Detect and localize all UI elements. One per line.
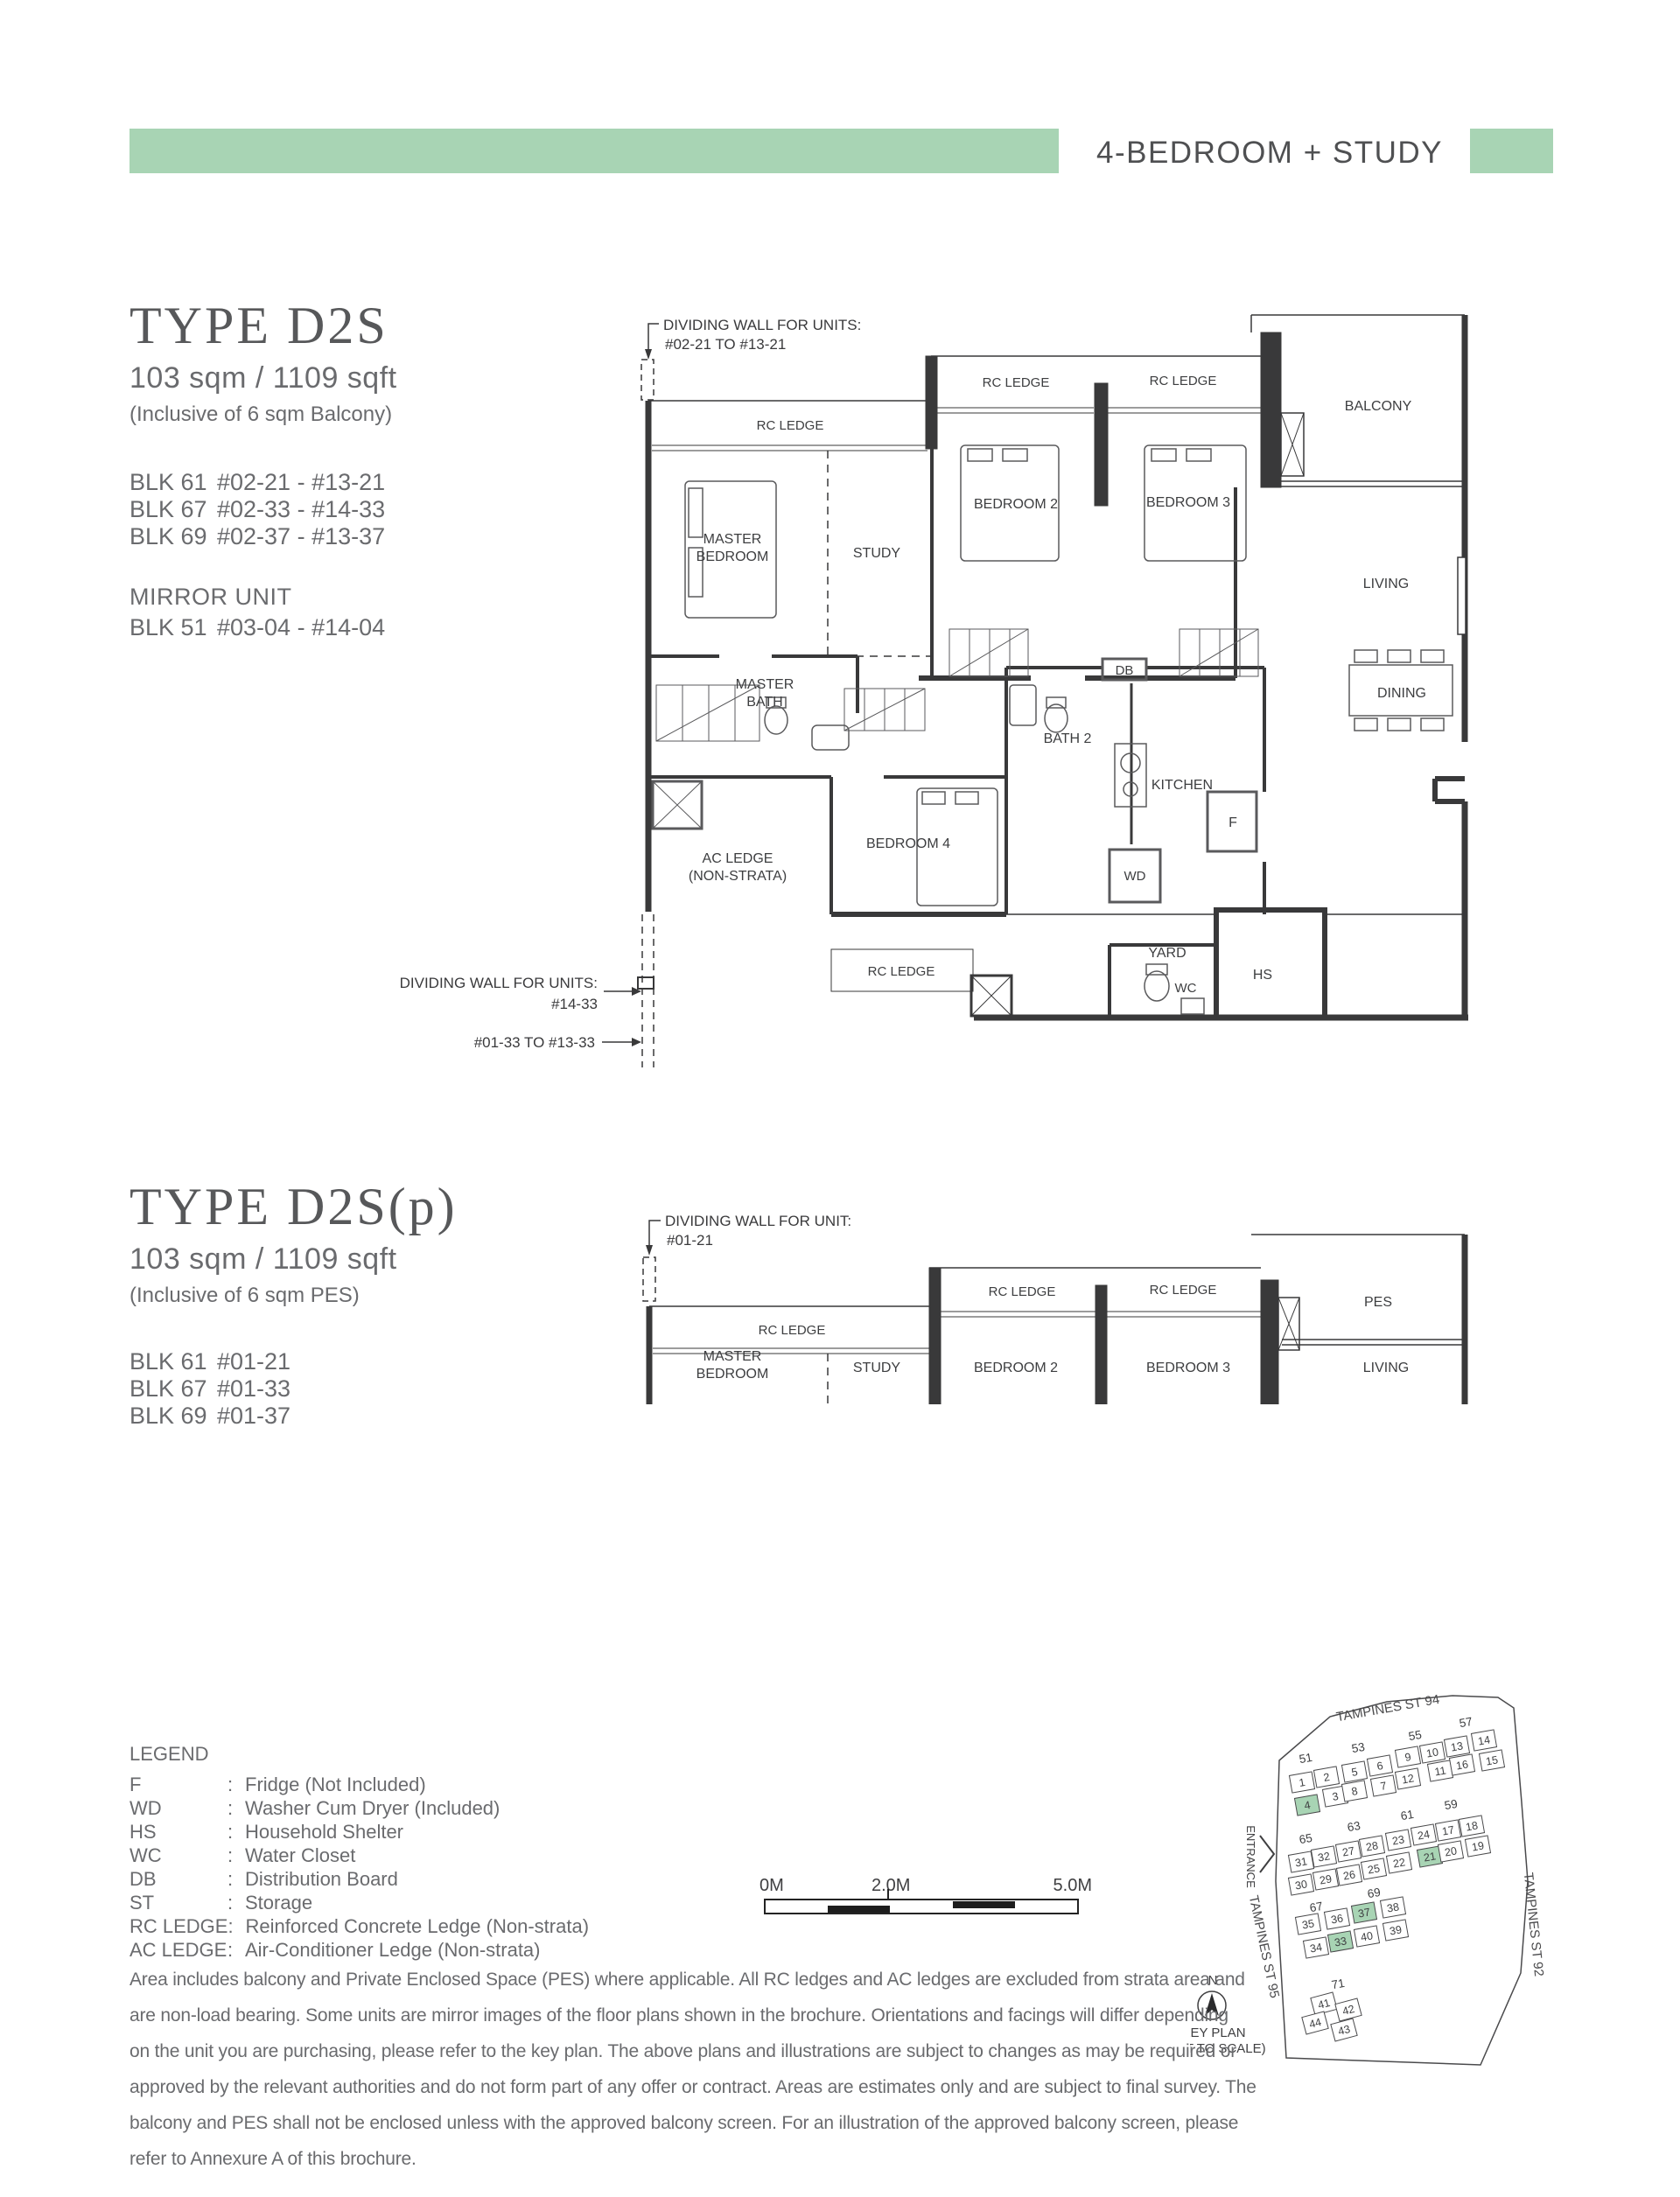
legend-row: WD:Washer Cum Dryer (Included) — [129, 1796, 742, 1820]
label-yard: YARD — [1148, 946, 1186, 961]
legend-colon: : — [227, 1773, 245, 1796]
label-hs: HS — [1253, 968, 1272, 983]
legend-key: AC LEDGE — [129, 1938, 227, 1962]
legend-key: WD — [129, 1796, 227, 1820]
type-d2sp-inclusive: (Inclusive of 6 sqm PES) — [129, 1284, 497, 1308]
label-rc-ledge: RC LEDGE — [1150, 1283, 1217, 1298]
disclaimer-line: balcony and PES shall not be enclosed un… — [129, 2105, 1372, 2141]
header-accent-bar — [129, 129, 1059, 173]
label-master-bedroom: BEDROOM — [696, 1367, 769, 1382]
blk-units: #01-21 — [217, 1348, 290, 1375]
legend-key: RC LEDGE — [129, 1914, 227, 1938]
label-bedroom4: BEDROOM 4 — [866, 836, 950, 851]
legend-desc: Household Shelter — [245, 1820, 403, 1844]
page-title: 4-BEDROOM + STUDY — [1096, 136, 1443, 171]
label-db: DB — [1116, 663, 1134, 678]
keyplan-block-number: 12 — [1401, 1772, 1415, 1786]
blk-units: #02-37 - #13-37 — [217, 523, 385, 550]
keyplan-block-number: 27 — [1341, 1844, 1355, 1858]
legend-key: ST — [129, 1891, 227, 1914]
annotation-dividing-wall-top-units: #02-21 TO #13-21 — [665, 336, 786, 353]
legend-row: ST:Storage — [129, 1891, 742, 1914]
scale-seg — [766, 1900, 828, 1913]
legend-desc: Fridge (Not Included) — [245, 1773, 426, 1796]
legend-colon: : — [227, 1820, 245, 1844]
disclaimer-line: approved by the relevant authorities and… — [129, 2069, 1372, 2105]
label-bedroom2: BEDROOM 2 — [974, 1361, 1058, 1375]
label-bath2: BATH 2 — [1044, 731, 1092, 746]
keyplan-block-number: 25 — [1367, 1862, 1381, 1876]
label-master-bedroom: MASTER — [703, 1349, 762, 1364]
legend-desc: Reinforced Concrete Ledge (Non-strata) — [245, 1914, 589, 1938]
label-ac-ledge: AC LEDGE — [703, 851, 773, 866]
disclaimer: Area includes balcony and Private Enclos… — [129, 1962, 1372, 2177]
disclaimer-line: refer to Annexure A of this brochure. — [129, 2141, 1372, 2177]
header-accent-square — [1470, 129, 1553, 173]
keyplan-block-number: 24 — [1417, 1828, 1431, 1842]
label-wc: WC — [1175, 981, 1197, 996]
blk-row: BLK 69 #01-37 — [129, 1403, 497, 1430]
keyplan-block-number: 29 — [1319, 1872, 1333, 1886]
wardrobe-icon — [656, 685, 759, 741]
label-ac-ledge: (NON-STRATA) — [689, 869, 787, 884]
legend-key: DB — [129, 1867, 227, 1891]
label-rc-ledge: RC LEDGE — [989, 1284, 1056, 1299]
keyplan-block-number: 31 — [1294, 1855, 1308, 1869]
label-dining: DINING — [1377, 686, 1426, 701]
keyplan-block-number: 19 — [1471, 1839, 1485, 1853]
keyplan-group-number: 65 — [1298, 1831, 1313, 1846]
legend-key: WC — [129, 1844, 227, 1867]
type-d2sp-title: TYPE D2S(p) — [129, 1177, 497, 1237]
legend-desc: Washer Cum Dryer (Included) — [245, 1796, 500, 1820]
keyplan-block-number: 38 — [1386, 1900, 1400, 1914]
blk-units: #03-04 - #14-04 — [217, 614, 385, 641]
disclaimer-line: Area includes balcony and Private Enclos… — [129, 1962, 1372, 1998]
keyplan-block-number: 32 — [1317, 1850, 1331, 1864]
keyplan-block-number: 14 — [1477, 1733, 1491, 1747]
label-master-bedroom: BEDROOM — [696, 549, 769, 564]
keyplan-group-number: 55 — [1408, 1728, 1423, 1743]
legend-colon: : — [227, 1891, 245, 1914]
keyplan-block-number: 18 — [1465, 1819, 1479, 1833]
basin-icon — [1181, 998, 1204, 1014]
legend-title: LEGEND — [129, 1743, 742, 1766]
scale-5m: 5.0M — [1053, 1876, 1092, 1896]
blk-label: BLK 61 — [129, 1348, 217, 1375]
blk-label: BLK 69 — [129, 523, 217, 550]
label-bedroom3: BEDROOM 3 — [1146, 1361, 1230, 1375]
blk-label: BLK 67 — [129, 1375, 217, 1403]
label-pes: PES — [1364, 1295, 1392, 1310]
legend: LEGEND F:Fridge (Not Included) WD:Washer… — [129, 1743, 742, 1962]
blk-units: #02-33 - #14-33 — [217, 496, 385, 523]
label-living: LIVING — [1363, 1361, 1409, 1375]
floor-plan-d2sp: DIVIDING WALL FOR UNIT: #01-21 RC LEDGE … — [639, 1212, 1487, 1404]
scale-bar: 0M 2.0M 5.0M — [759, 1876, 1092, 1918]
scale-0m: 0M — [759, 1876, 784, 1896]
toilet-icon — [1144, 964, 1169, 1001]
plan1-walls — [602, 315, 1468, 1067]
type-d2sp-info: TYPE D2S(p) 103 sqm / 1109 sqft (Inclusi… — [129, 1177, 497, 1430]
scale-tick — [887, 1889, 889, 1899]
legend-key: HS — [129, 1820, 227, 1844]
keyplan-group-number: 59 — [1444, 1797, 1459, 1812]
brochure-page: 4-BEDROOM + STUDY TYPE D2S 103 sqm / 110… — [0, 0, 1680, 2197]
legend-colon: : — [227, 1844, 245, 1867]
label-rc-ledge: RC LEDGE — [757, 418, 824, 433]
keyplan-block-number: 26 — [1342, 1868, 1356, 1882]
disclaimer-line: on the unit you are purchasing, please r… — [129, 2033, 1372, 2069]
keyplan-block-number: 35 — [1301, 1917, 1315, 1931]
keyplan-block-number: 30 — [1294, 1878, 1308, 1892]
label-bedroom3: BEDROOM 3 — [1146, 495, 1230, 510]
blk-label: BLK 51 — [129, 614, 217, 641]
blk-units: #02-21 - #13-21 — [217, 469, 385, 496]
blk-label: BLK 61 — [129, 469, 217, 496]
scale-2m: 2.0M — [871, 1876, 910, 1896]
plan1-furniture — [653, 445, 1452, 1014]
legend-desc: Air-Conditioner Ledge (Non-strata) — [245, 1938, 541, 1962]
keyplan-block-number: 11 — [1433, 1764, 1446, 1778]
annotation-dividing-wall-unit: #01-21 — [667, 1232, 713, 1249]
legend-key: F — [129, 1773, 227, 1796]
window-icon — [1458, 557, 1466, 634]
label-study: STUDY — [853, 1361, 901, 1375]
blk-row: BLK 61 #01-21 — [129, 1348, 497, 1375]
blk-units: #01-33 — [217, 1375, 290, 1403]
keyplan-block-number: 22 — [1392, 1856, 1406, 1870]
keyplan-group-number: 53 — [1351, 1740, 1366, 1755]
label-master-bath: BATH — [746, 695, 782, 710]
label-study: STUDY — [853, 546, 901, 561]
label-master-bath: MASTER — [736, 677, 794, 692]
label-wd: WD — [1124, 869, 1146, 884]
keyplan-block-number: 37 — [1357, 1906, 1371, 1920]
legend-colon: : — [227, 1914, 245, 1938]
scale-seg — [953, 1900, 1015, 1913]
legend-row: RC LEDGE:Reinforced Concrete Ledge (Non-… — [129, 1914, 742, 1938]
blk-label: BLK 67 — [129, 496, 217, 523]
keyplan-block-number: 39 — [1389, 1923, 1403, 1937]
keyplan-block-number: 28 — [1365, 1839, 1379, 1853]
label-rc-ledge: RC LEDGE — [983, 375, 1050, 390]
legend-row: AC LEDGE:Air-Conditioner Ledge (Non-stra… — [129, 1938, 742, 1962]
label-bedroom2: BEDROOM 2 — [974, 497, 1058, 512]
blk-row: BLK 67 #01-33 — [129, 1375, 497, 1403]
legend-colon: : — [227, 1938, 245, 1962]
annotation-dividing-wall-left: DIVIDING WALL FOR UNITS: — [400, 975, 598, 991]
scale-seg — [828, 1900, 890, 1913]
legend-row: WC:Water Closet — [129, 1844, 742, 1867]
keyplan-group-number: 63 — [1347, 1819, 1361, 1834]
keyplan-group-number: 67 — [1309, 1900, 1324, 1914]
legend-colon: : — [227, 1867, 245, 1891]
keyplan-block-number: 20 — [1444, 1844, 1458, 1858]
annotation-dividing-wall-left-b: #01-33 TO #13-33 — [474, 1034, 595, 1051]
keyplan-block-number: 34 — [1309, 1941, 1323, 1955]
keyplan-group-number: 61 — [1400, 1808, 1415, 1823]
label-kitchen: KITCHEN — [1151, 778, 1213, 793]
keyplan-block-number: 17 — [1441, 1823, 1455, 1837]
basin-icon — [1010, 685, 1036, 725]
keyplan-group-number: 57 — [1459, 1715, 1473, 1730]
keyplan-block-number: 40 — [1360, 1929, 1374, 1943]
street-tampines-st-94: TAMPINES ST 94 — [1335, 1692, 1441, 1725]
type-d2sp-area: 103 sqm / 1109 sqft — [129, 1242, 497, 1277]
label-balcony: BALCONY — [1345, 399, 1412, 414]
blk-units: #01-37 — [217, 1403, 290, 1430]
scale-seg — [890, 1900, 952, 1913]
label-rc-ledge: RC LEDGE — [759, 1323, 826, 1338]
disclaimer-line: are non-load bearing. Some units are mir… — [129, 1998, 1372, 2033]
legend-row: HS:Household Shelter — [129, 1820, 742, 1844]
keyplan-block-number: 21 — [1423, 1850, 1437, 1864]
blk-label: BLK 69 — [129, 1403, 217, 1430]
keyplan-block-number: 16 — [1455, 1758, 1469, 1772]
scale-seg — [1015, 1900, 1077, 1913]
scale-bar-track — [764, 1899, 1079, 1914]
legend-colon: : — [227, 1796, 245, 1820]
legend-desc: Distribution Board — [245, 1867, 398, 1891]
entrance-chevron-icon — [1260, 1836, 1274, 1872]
label-fridge: F — [1228, 815, 1237, 830]
legend-desc: Water Closet — [245, 1844, 355, 1867]
keyplan-block-number: 23 — [1391, 1833, 1405, 1847]
keyplan-block-number: 13 — [1450, 1739, 1464, 1753]
legend-row: DB:Distribution Board — [129, 1867, 742, 1891]
legend-row: F:Fridge (Not Included) — [129, 1773, 742, 1796]
toilet-icon — [1045, 697, 1067, 732]
keyplan-block-number: 15 — [1485, 1753, 1499, 1767]
entrance-label: ENTRANCE — [1244, 1825, 1257, 1888]
label-rc-ledge: RC LEDGE — [1150, 374, 1217, 388]
annotation-dividing-wall-left-units: #14-33 — [551, 996, 598, 1012]
keyplan-block-number: 36 — [1330, 1912, 1344, 1926]
label-master-bedroom: MASTER — [703, 532, 762, 547]
keyplan-block-number: 33 — [1333, 1935, 1347, 1949]
annotation-dividing-wall-top: DIVIDING WALL FOR UNITS: — [663, 317, 861, 333]
arrow-down-icon — [646, 1245, 653, 1256]
arrow-down-icon — [645, 349, 652, 360]
basin-icon — [812, 725, 849, 750]
legend-desc: Storage — [245, 1891, 312, 1914]
label-living: LIVING — [1363, 577, 1409, 591]
arrow-right-icon — [632, 1038, 641, 1046]
keyplan-group-number: 69 — [1367, 1886, 1382, 1900]
keyplan-block-number: 10 — [1425, 1746, 1439, 1760]
annotation-dividing-wall: DIVIDING WALL FOR UNIT: — [665, 1213, 851, 1229]
shower-icon — [653, 781, 702, 829]
keyplan-group-number: 51 — [1298, 1751, 1313, 1766]
label-rc-ledge: RC LEDGE — [868, 964, 935, 979]
floor-plan-d2s: DIVIDING WALL FOR UNITS: #02-21 TO #13-2… — [394, 302, 1487, 1089]
